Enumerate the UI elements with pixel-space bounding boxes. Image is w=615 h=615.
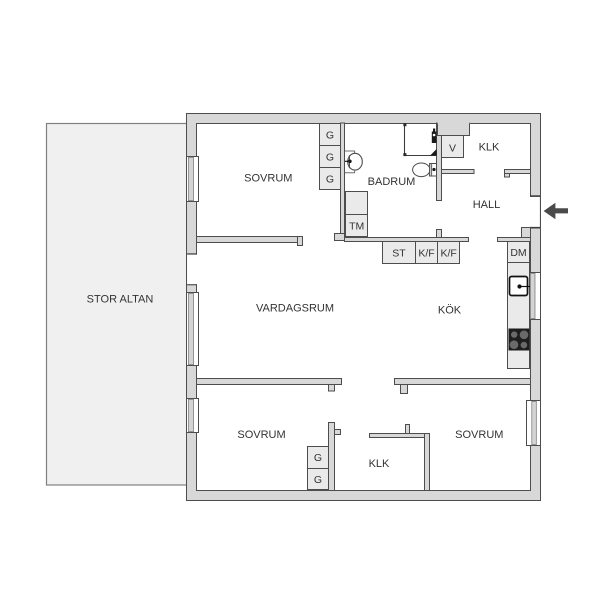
svg-text:K/F: K/F	[441, 247, 457, 259]
svg-text:SOVRUM: SOVRUM	[455, 429, 503, 441]
svg-text:G: G	[314, 474, 322, 486]
svg-text:SOVRUM: SOVRUM	[244, 172, 292, 184]
svg-text:G: G	[314, 452, 322, 464]
svg-text:SOVRUM: SOVRUM	[237, 429, 285, 441]
svg-text:STOR ALTAN: STOR ALTAN	[87, 293, 154, 305]
svg-text:HALL: HALL	[473, 199, 501, 211]
svg-text:KLK: KLK	[369, 458, 390, 470]
svg-text:VARDAGSRUM: VARDAGSRUM	[256, 302, 334, 314]
svg-text:K/F: K/F	[418, 247, 434, 259]
svg-text:TM: TM	[349, 221, 364, 233]
svg-text:G: G	[326, 151, 334, 163]
svg-text:ST: ST	[392, 247, 406, 259]
svg-text:KLK: KLK	[479, 141, 500, 153]
svg-text:V: V	[449, 142, 456, 154]
svg-text:KÖK: KÖK	[438, 304, 462, 316]
svg-text:DM: DM	[510, 247, 526, 259]
svg-text:G: G	[326, 129, 334, 141]
svg-text:BADRUM: BADRUM	[368, 176, 416, 188]
svg-text:G: G	[326, 173, 334, 185]
